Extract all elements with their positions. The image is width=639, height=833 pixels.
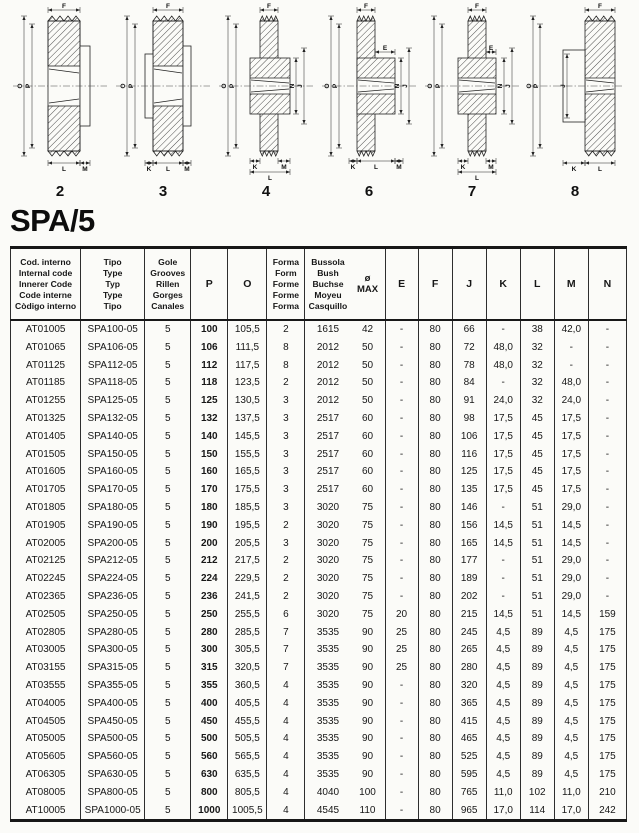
cell-e: - bbox=[385, 677, 418, 695]
cell-j: 116 bbox=[452, 446, 486, 464]
table-row: AT10005SPA1000-05510001005,54 4545 110 -… bbox=[11, 802, 627, 821]
cell-j: 146 bbox=[452, 499, 486, 517]
cell-tipo: SPA190-05 bbox=[81, 517, 145, 535]
cell-p: 170 bbox=[191, 481, 228, 499]
cell-forma: 3 bbox=[267, 410, 305, 428]
cell-m: 4,5 bbox=[554, 766, 588, 784]
cell-l: 89 bbox=[520, 713, 554, 731]
cell-p: 132 bbox=[191, 410, 228, 428]
cell-e: - bbox=[385, 766, 418, 784]
cell-tipo: SPA100-05 bbox=[81, 320, 145, 339]
cell-bush: 3535 bbox=[305, 713, 350, 731]
cell-m: 4,5 bbox=[554, 624, 588, 642]
form-number-label: 6 bbox=[365, 183, 373, 200]
cell-bush-omax: 3535 90 bbox=[305, 677, 385, 695]
cell-tipo: SPA150-05 bbox=[81, 446, 145, 464]
cell-cod: AT01005 bbox=[11, 320, 81, 339]
cell-forma: 7 bbox=[267, 659, 305, 677]
cell-forma: 4 bbox=[267, 695, 305, 713]
cell-j: 965 bbox=[452, 802, 486, 821]
cell-n: 175 bbox=[588, 677, 626, 695]
cell-n: 175 bbox=[588, 659, 626, 677]
catalog-page: FOPLM 2 FOPKLM 3 FOPNJKML 4 FEOPNJKLM 6 … bbox=[0, 0, 639, 833]
svg-text:F: F bbox=[62, 3, 66, 10]
cell-m: 14,5 bbox=[554, 535, 588, 553]
cell-tipo: SPA355-05 bbox=[81, 677, 145, 695]
cell-n: 175 bbox=[588, 641, 626, 659]
cell-forma: 3 bbox=[267, 463, 305, 481]
cell-m: 24,0 bbox=[554, 392, 588, 410]
svg-text:P: P bbox=[533, 83, 540, 88]
cell-f: 80 bbox=[418, 320, 452, 339]
cell-m: 4,5 bbox=[554, 659, 588, 677]
cell-j: 98 bbox=[452, 410, 486, 428]
svg-text:P: P bbox=[128, 83, 135, 88]
svg-text:M: M bbox=[396, 164, 401, 171]
cell-omax: 50 bbox=[351, 357, 385, 375]
svg-text:K: K bbox=[461, 164, 466, 171]
cell-bush-omax: 2517 60 bbox=[305, 410, 385, 428]
cell-j: 177 bbox=[452, 552, 486, 570]
cell-m: 14,5 bbox=[554, 606, 588, 624]
table-row: AT01125SPA112-055112117,58 2012 50 -8078… bbox=[11, 357, 627, 375]
cell-omax: 90 bbox=[351, 748, 385, 766]
cell-gole: 5 bbox=[145, 588, 191, 606]
cell-gole: 5 bbox=[145, 802, 191, 821]
cell-j: 78 bbox=[452, 357, 486, 375]
cell-gole: 5 bbox=[145, 446, 191, 464]
table-header: Cod. internoInternal codeInnerer CodeCod… bbox=[11, 248, 627, 321]
cell-tipo: SPA500-05 bbox=[81, 730, 145, 748]
svg-text:O: O bbox=[526, 83, 533, 88]
cell-o: 175,5 bbox=[228, 481, 267, 499]
cell-bush: 2517 bbox=[305, 463, 350, 481]
cell-bush: 3535 bbox=[305, 730, 350, 748]
cell-bush-omax: 3535 90 bbox=[305, 659, 385, 677]
pulley-cross-section-drawing: FOPKLM bbox=[113, 2, 213, 182]
cell-l: 51 bbox=[520, 570, 554, 588]
table-row: AT03005SPA300-055300305,57 3535 90 25802… bbox=[11, 641, 627, 659]
col-header-k: K bbox=[486, 248, 520, 321]
cell-tipo: SPA112-05 bbox=[81, 357, 145, 375]
cell-forma: 3 bbox=[267, 481, 305, 499]
cell-e: 25 bbox=[385, 641, 418, 659]
cell-cod: AT03005 bbox=[11, 641, 81, 659]
cell-m: 29,0 bbox=[554, 499, 588, 517]
cell-k: 14,5 bbox=[486, 606, 520, 624]
cell-l: 51 bbox=[520, 535, 554, 553]
cell-forma: 6 bbox=[267, 606, 305, 624]
cell-k: 4,5 bbox=[486, 766, 520, 784]
cell-k: 4,5 bbox=[486, 677, 520, 695]
cell-m: 17,0 bbox=[554, 802, 588, 821]
cell-e: - bbox=[385, 428, 418, 446]
cell-gole: 5 bbox=[145, 535, 191, 553]
svg-text:M: M bbox=[184, 166, 189, 173]
svg-text:M: M bbox=[281, 164, 286, 171]
cell-n: 159 bbox=[588, 606, 626, 624]
cell-cod: AT02805 bbox=[11, 624, 81, 642]
svg-text:M: M bbox=[82, 166, 87, 173]
cell-n: 210 bbox=[588, 784, 626, 802]
cell-n: - bbox=[588, 535, 626, 553]
cell-omax: 60 bbox=[351, 410, 385, 428]
table-row: AT05605SPA560-055560565,54 3535 90 -8052… bbox=[11, 748, 627, 766]
cell-f: 80 bbox=[418, 641, 452, 659]
cell-f: 80 bbox=[418, 606, 452, 624]
col-header-f: F bbox=[418, 248, 452, 321]
cell-gole: 5 bbox=[145, 624, 191, 642]
cell-bush: 3535 bbox=[305, 695, 350, 713]
cell-f: 80 bbox=[418, 410, 452, 428]
cell-m: 4,5 bbox=[554, 730, 588, 748]
cell-gole: 5 bbox=[145, 320, 191, 339]
form-number-label: 8 bbox=[571, 183, 579, 200]
cell-bush: 3020 bbox=[305, 552, 350, 570]
cell-bush: 3535 bbox=[305, 677, 350, 695]
cell-l: 89 bbox=[520, 730, 554, 748]
svg-text:F: F bbox=[267, 3, 271, 10]
cell-cod: AT05605 bbox=[11, 748, 81, 766]
cell-o: 255,5 bbox=[228, 606, 267, 624]
cell-cod: AT01705 bbox=[11, 481, 81, 499]
cell-p: 100 bbox=[191, 320, 228, 339]
cell-forma: 2 bbox=[267, 320, 305, 339]
cell-e: - bbox=[385, 499, 418, 517]
pulley-cross-section-drawing: FOPLM bbox=[10, 2, 110, 182]
cell-f: 80 bbox=[418, 784, 452, 802]
cell-n: 175 bbox=[588, 695, 626, 713]
cell-cod: AT08005 bbox=[11, 784, 81, 802]
cell-bush-omax: 3020 75 bbox=[305, 517, 385, 535]
cell-tipo: SPA212-05 bbox=[81, 552, 145, 570]
cell-p: 224 bbox=[191, 570, 228, 588]
cell-tipo: SPA132-05 bbox=[81, 410, 145, 428]
cell-gole: 5 bbox=[145, 730, 191, 748]
cell-m: 29,0 bbox=[554, 552, 588, 570]
cell-n: 175 bbox=[588, 748, 626, 766]
cell-l: 51 bbox=[520, 606, 554, 624]
cell-j: 415 bbox=[452, 713, 486, 731]
cell-omax: 50 bbox=[351, 339, 385, 357]
cell-cod: AT01805 bbox=[11, 499, 81, 517]
cell-n: - bbox=[588, 481, 626, 499]
pulley-figure-form-8: FOPJKL 8 bbox=[525, 2, 625, 202]
cell-p: 212 bbox=[191, 552, 228, 570]
cell-l: 32 bbox=[520, 357, 554, 375]
svg-text:O: O bbox=[324, 83, 331, 88]
col-header-l: L bbox=[520, 248, 554, 321]
table-row: AT02125SPA212-055212217,52 3020 75 -8017… bbox=[11, 552, 627, 570]
cell-bush-omax: 3535 90 bbox=[305, 713, 385, 731]
table-row: AT04505SPA450-055450455,54 3535 90 -8041… bbox=[11, 713, 627, 731]
cell-bush-omax: 3020 75 bbox=[305, 499, 385, 517]
cell-k: - bbox=[486, 552, 520, 570]
cell-cod: AT02245 bbox=[11, 570, 81, 588]
cell-cod: AT01605 bbox=[11, 463, 81, 481]
pulley-figure-form-7: FEOPNJKML 7 bbox=[422, 2, 522, 202]
cell-forma: 4 bbox=[267, 784, 305, 802]
svg-text:F: F bbox=[475, 3, 479, 10]
cell-bush-omax: 3020 75 bbox=[305, 606, 385, 624]
cell-o: 117,5 bbox=[228, 357, 267, 375]
cell-e: - bbox=[385, 695, 418, 713]
cell-omax: 90 bbox=[351, 766, 385, 784]
cell-j: 215 bbox=[452, 606, 486, 624]
cell-o: 305,5 bbox=[228, 641, 267, 659]
cell-p: 280 bbox=[191, 624, 228, 642]
cell-bush-omax: 3535 90 bbox=[305, 766, 385, 784]
cell-n: - bbox=[588, 339, 626, 357]
cell-n: 175 bbox=[588, 730, 626, 748]
cell-tipo: SPA300-05 bbox=[81, 641, 145, 659]
cell-gole: 5 bbox=[145, 499, 191, 517]
cell-forma: 8 bbox=[267, 357, 305, 375]
cell-m: 4,5 bbox=[554, 713, 588, 731]
cell-omax: 90 bbox=[351, 677, 385, 695]
cell-n: - bbox=[588, 588, 626, 606]
cell-tipo: SPA560-05 bbox=[81, 748, 145, 766]
cell-forma: 4 bbox=[267, 748, 305, 766]
pulley-cross-section-drawing: FEOPNJKLM bbox=[319, 2, 419, 182]
cell-n: - bbox=[588, 392, 626, 410]
cell-p: 250 bbox=[191, 606, 228, 624]
cell-cod: AT02365 bbox=[11, 588, 81, 606]
cell-o: 130,5 bbox=[228, 392, 267, 410]
cell-n: - bbox=[588, 320, 626, 339]
svg-text:O: O bbox=[120, 83, 127, 88]
cell-o: 205,5 bbox=[228, 535, 267, 553]
cell-j: 91 bbox=[452, 392, 486, 410]
cell-tipo: SPA315-05 bbox=[81, 659, 145, 677]
cell-f: 80 bbox=[418, 428, 452, 446]
cell-p: 1000 bbox=[191, 802, 228, 821]
pulley-figure-form-2: FOPLM 2 bbox=[10, 2, 110, 202]
cell-j: 280 bbox=[452, 659, 486, 677]
cell-forma: 4 bbox=[267, 802, 305, 821]
cell-e: - bbox=[385, 730, 418, 748]
cell-cod: AT06305 bbox=[11, 766, 81, 784]
cell-tipo: SPA236-05 bbox=[81, 588, 145, 606]
cell-bush: 3020 bbox=[305, 535, 350, 553]
cell-cod: AT04505 bbox=[11, 713, 81, 731]
cell-gole: 5 bbox=[145, 339, 191, 357]
svg-text:K: K bbox=[253, 164, 258, 171]
cell-j: 66 bbox=[452, 320, 486, 339]
pulley-cross-section-drawing: FOPNJKML bbox=[216, 2, 316, 182]
cell-j: 320 bbox=[452, 677, 486, 695]
cell-l: 89 bbox=[520, 766, 554, 784]
svg-text:P: P bbox=[332, 83, 339, 88]
cell-f: 80 bbox=[418, 392, 452, 410]
cell-l: 32 bbox=[520, 339, 554, 357]
cell-gole: 5 bbox=[145, 748, 191, 766]
cell-o: 285,5 bbox=[228, 624, 267, 642]
cell-k: 48,0 bbox=[486, 357, 520, 375]
cell-bush-omax: 3535 90 bbox=[305, 695, 385, 713]
cell-m: 4,5 bbox=[554, 695, 588, 713]
cell-bush: 3020 bbox=[305, 499, 350, 517]
cell-l: 89 bbox=[520, 695, 554, 713]
cell-l: 45 bbox=[520, 428, 554, 446]
cell-e: - bbox=[385, 374, 418, 392]
cell-o: 241,5 bbox=[228, 588, 267, 606]
cell-p: 315 bbox=[191, 659, 228, 677]
cell-e: - bbox=[385, 357, 418, 375]
cell-gole: 5 bbox=[145, 481, 191, 499]
svg-text:O: O bbox=[17, 83, 24, 88]
pulley-form-diagrams: FOPLM 2 FOPKLM 3 FOPNJKML 4 FEOPNJKLM 6 … bbox=[0, 0, 639, 202]
cell-bush: 2012 bbox=[305, 339, 350, 357]
cell-e: - bbox=[385, 517, 418, 535]
cell-gole: 5 bbox=[145, 410, 191, 428]
cell-o: 185,5 bbox=[228, 499, 267, 517]
cell-forma: 2 bbox=[267, 588, 305, 606]
cell-f: 80 bbox=[418, 624, 452, 642]
cell-bush: 3535 bbox=[305, 641, 350, 659]
cell-e: - bbox=[385, 320, 418, 339]
cell-e: - bbox=[385, 552, 418, 570]
table-row: AT01905SPA190-055190195,52 3020 75 -8015… bbox=[11, 517, 627, 535]
cell-o: 155,5 bbox=[228, 446, 267, 464]
cell-k: 4,5 bbox=[486, 695, 520, 713]
cell-tipo: SPA170-05 bbox=[81, 481, 145, 499]
cell-bush: 4545 bbox=[305, 802, 350, 820]
cell-bush-omax: 3020 75 bbox=[305, 535, 385, 553]
table-row: AT08005SPA800-055800805,54 4040 100 -807… bbox=[11, 784, 627, 802]
cell-gole: 5 bbox=[145, 677, 191, 695]
cell-bush-omax: 1615 42 bbox=[305, 320, 385, 339]
cell-o: 1005,5 bbox=[228, 802, 267, 821]
cell-e: - bbox=[385, 410, 418, 428]
cell-bush-omax: 3020 75 bbox=[305, 552, 385, 570]
cell-o: 229,5 bbox=[228, 570, 267, 588]
cell-m: 17,5 bbox=[554, 481, 588, 499]
cell-bush-omax: 2012 50 bbox=[305, 374, 385, 392]
cell-tipo: SPA400-05 bbox=[81, 695, 145, 713]
cell-bush-omax: 2517 60 bbox=[305, 481, 385, 499]
cell-bush: 3535 bbox=[305, 748, 350, 766]
cell-o: 195,5 bbox=[228, 517, 267, 535]
cell-m: 48,0 bbox=[554, 374, 588, 392]
table-row: AT02005SPA200-055200205,53 3020 75 -8016… bbox=[11, 535, 627, 553]
cell-k: 17,5 bbox=[486, 428, 520, 446]
cell-bush: 4040 bbox=[305, 784, 350, 802]
cell-bush: 2517 bbox=[305, 428, 350, 446]
cell-e: - bbox=[385, 446, 418, 464]
cell-k: 17,5 bbox=[486, 481, 520, 499]
cell-m: 11,0 bbox=[554, 784, 588, 802]
cell-f: 80 bbox=[418, 730, 452, 748]
cell-cod: AT10005 bbox=[11, 802, 81, 821]
cell-k: 48,0 bbox=[486, 339, 520, 357]
cell-p: 300 bbox=[191, 641, 228, 659]
cell-omax: 90 bbox=[351, 695, 385, 713]
cell-l: 38 bbox=[520, 320, 554, 339]
table-row: AT03155SPA315-055315320,57 3535 90 25802… bbox=[11, 659, 627, 677]
cell-o: 111,5 bbox=[228, 339, 267, 357]
svg-text:O: O bbox=[427, 83, 434, 88]
cell-bush: 3535 bbox=[305, 659, 350, 677]
cell-bush: 1615 bbox=[305, 321, 350, 339]
svg-text:J: J bbox=[505, 84, 512, 88]
cell-omax: 75 bbox=[351, 588, 385, 606]
cell-n: - bbox=[588, 570, 626, 588]
cell-forma: 3 bbox=[267, 392, 305, 410]
svg-text:N: N bbox=[394, 83, 401, 88]
cell-e: - bbox=[385, 588, 418, 606]
cell-j: 365 bbox=[452, 695, 486, 713]
cell-cod: AT01505 bbox=[11, 446, 81, 464]
table-row: AT03555SPA355-055355360,54 3535 90 -8032… bbox=[11, 677, 627, 695]
cell-p: 150 bbox=[191, 446, 228, 464]
cell-gole: 5 bbox=[145, 463, 191, 481]
cell-bush-omax: 2012 50 bbox=[305, 392, 385, 410]
cell-o: 145,5 bbox=[228, 428, 267, 446]
cell-omax: 100 bbox=[351, 784, 385, 802]
cell-tipo: SPA224-05 bbox=[81, 570, 145, 588]
cell-p: 800 bbox=[191, 784, 228, 802]
spa5-dimension-table: Cod. internoInternal codeInnerer CodeCod… bbox=[10, 246, 627, 822]
table-row: AT01605SPA160-055160165,53 2517 60 -8012… bbox=[11, 463, 627, 481]
cell-omax: 75 bbox=[351, 552, 385, 570]
cell-bush: 2012 bbox=[305, 392, 350, 410]
svg-text:E: E bbox=[489, 45, 494, 52]
svg-text:P: P bbox=[435, 83, 442, 88]
cell-e: - bbox=[385, 570, 418, 588]
table-row: AT01185SPA118-055118123,52 2012 50 -8084… bbox=[11, 374, 627, 392]
cell-j: 465 bbox=[452, 730, 486, 748]
cell-j: 135 bbox=[452, 481, 486, 499]
cell-p: 118 bbox=[191, 374, 228, 392]
table-row: AT02245SPA224-055224229,52 3020 75 -8018… bbox=[11, 570, 627, 588]
cell-k: - bbox=[486, 588, 520, 606]
cell-omax: 75 bbox=[351, 499, 385, 517]
cell-l: 32 bbox=[520, 392, 554, 410]
cell-p: 125 bbox=[191, 392, 228, 410]
cell-gole: 5 bbox=[145, 357, 191, 375]
table-body: AT01005SPA100-055100105,52 1615 42 -8066… bbox=[11, 320, 627, 821]
cell-omax: 75 bbox=[351, 517, 385, 535]
table-row: AT01325SPA132-055132137,53 2517 60 -8098… bbox=[11, 410, 627, 428]
table-row: AT01005SPA100-055100105,52 1615 42 -8066… bbox=[11, 320, 627, 339]
cell-omax: 75 bbox=[351, 606, 385, 624]
col-header-internal-code: Cod. internoInternal codeInnerer CodeCod… bbox=[11, 248, 81, 321]
cell-forma: 4 bbox=[267, 766, 305, 784]
cell-k: - bbox=[486, 499, 520, 517]
cell-p: 400 bbox=[191, 695, 228, 713]
cell-gole: 5 bbox=[145, 713, 191, 731]
cell-gole: 5 bbox=[145, 428, 191, 446]
cell-k: 17,5 bbox=[486, 446, 520, 464]
cell-f: 80 bbox=[418, 695, 452, 713]
svg-text:L: L bbox=[166, 166, 170, 173]
cell-m: 17,5 bbox=[554, 446, 588, 464]
cell-gole: 5 bbox=[145, 695, 191, 713]
cell-e: - bbox=[385, 802, 418, 821]
cell-forma: 2 bbox=[267, 517, 305, 535]
svg-text:J: J bbox=[402, 84, 409, 88]
cell-e: 25 bbox=[385, 659, 418, 677]
cell-bush: 2012 bbox=[305, 357, 350, 375]
cell-gole: 5 bbox=[145, 766, 191, 784]
cell-cod: AT02125 bbox=[11, 552, 81, 570]
cell-cod: AT03555 bbox=[11, 677, 81, 695]
cell-omax: 50 bbox=[351, 392, 385, 410]
cell-bush-omax: 4040 100 bbox=[305, 784, 385, 802]
table-row: AT06305SPA630-055630635,54 3535 90 -8059… bbox=[11, 766, 627, 784]
cell-o: 320,5 bbox=[228, 659, 267, 677]
